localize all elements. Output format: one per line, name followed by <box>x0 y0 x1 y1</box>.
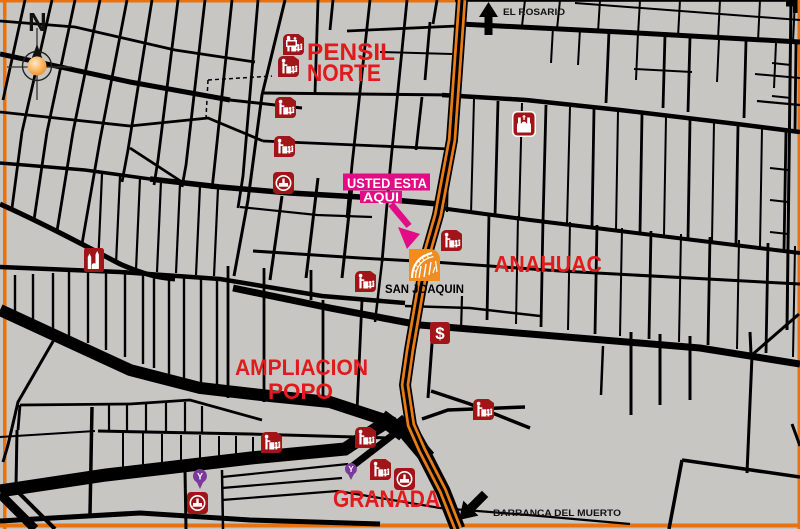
svg-text:AMPLIACION: AMPLIACION <box>235 355 368 380</box>
svg-text:Y: Y <box>348 465 354 474</box>
svg-text:USTED ESTA: USTED ESTA <box>347 176 427 191</box>
svg-text:$: $ <box>435 324 445 343</box>
svg-text:Y: Y <box>197 472 203 482</box>
svg-text:AQUI: AQUI <box>363 191 399 205</box>
svg-text:SAN JOAQUIN: SAN JOAQUIN <box>385 284 464 296</box>
svg-text:GRANADA: GRANADA <box>333 486 440 513</box>
svg-text:POPO: POPO <box>268 379 333 404</box>
svg-text:NORTE: NORTE <box>307 60 381 87</box>
svg-text:EL ROSARIO: EL ROSARIO <box>503 7 565 18</box>
svg-text:ANAHUAC: ANAHUAC <box>494 251 602 277</box>
svg-text:BARRANCA DEL MUERTO: BARRANCA DEL MUERTO <box>493 508 621 519</box>
